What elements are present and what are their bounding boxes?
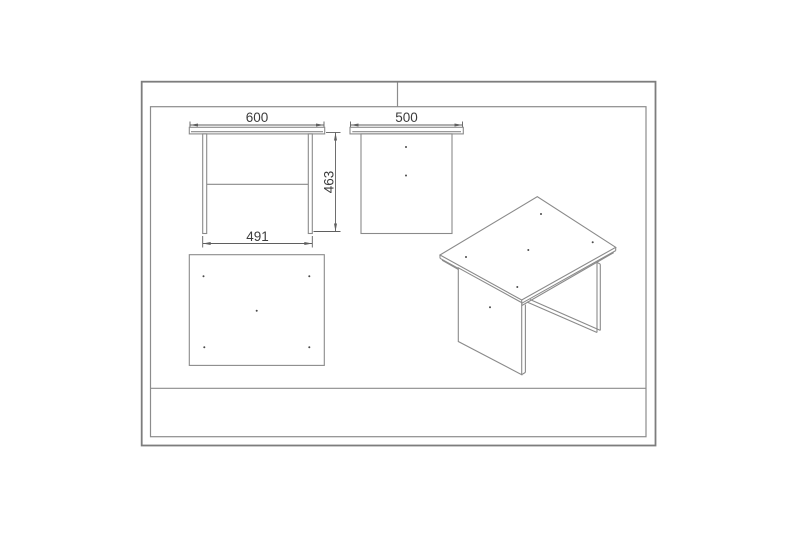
dim-arrow-left (190, 124, 198, 127)
screw-dot (405, 146, 407, 148)
side-view: 500 (350, 110, 463, 234)
screw-dot (405, 175, 407, 177)
screw-dot (308, 275, 310, 277)
screw-dot (308, 346, 310, 348)
screw-dot (203, 275, 205, 277)
drawing-sheet: 600 491 463 (0, 0, 800, 533)
iso-view (440, 197, 616, 375)
technical-drawing-canvas: 600 491 463 (0, 0, 800, 533)
dim-arrow-left (203, 242, 211, 245)
dimension-front-height: 463 (314, 133, 341, 232)
iso-right-panel-bottom-edge (527, 302, 597, 333)
dim-label-600: 600 (246, 110, 269, 125)
front-view: 600 491 463 (189, 110, 340, 248)
dim-arrow-bottom (334, 224, 337, 232)
dim-label-491: 491 (246, 229, 269, 244)
side-tabletop (350, 127, 463, 134)
dim-arrow-right (455, 124, 463, 127)
dim-arrow-right (304, 242, 312, 245)
screw-dot (256, 310, 258, 312)
dimension-front-bottom-width: 491 (203, 229, 313, 248)
iso-left-panel-bottom-wedge (522, 372, 526, 374)
dim-arrow-left (351, 124, 359, 127)
screw-dot (527, 249, 529, 251)
screw-dot (203, 346, 205, 348)
iso-right-panel-bottom-edge-inner (530, 300, 600, 331)
front-left-leg (203, 134, 207, 234)
dim-arrow-right (316, 124, 324, 127)
screw-dot (592, 241, 594, 243)
dim-label-500: 500 (395, 110, 418, 125)
screw-dot (516, 286, 518, 288)
screw-dot (489, 306, 491, 308)
front-right-leg (308, 134, 312, 234)
dim-arrow-top (334, 133, 337, 141)
screw-dot (540, 213, 542, 215)
plan-view (189, 255, 324, 366)
screw-dot (465, 256, 467, 258)
dim-label-463: 463 (322, 171, 337, 194)
front-tabletop (189, 127, 324, 134)
side-panel-leg (361, 134, 452, 234)
